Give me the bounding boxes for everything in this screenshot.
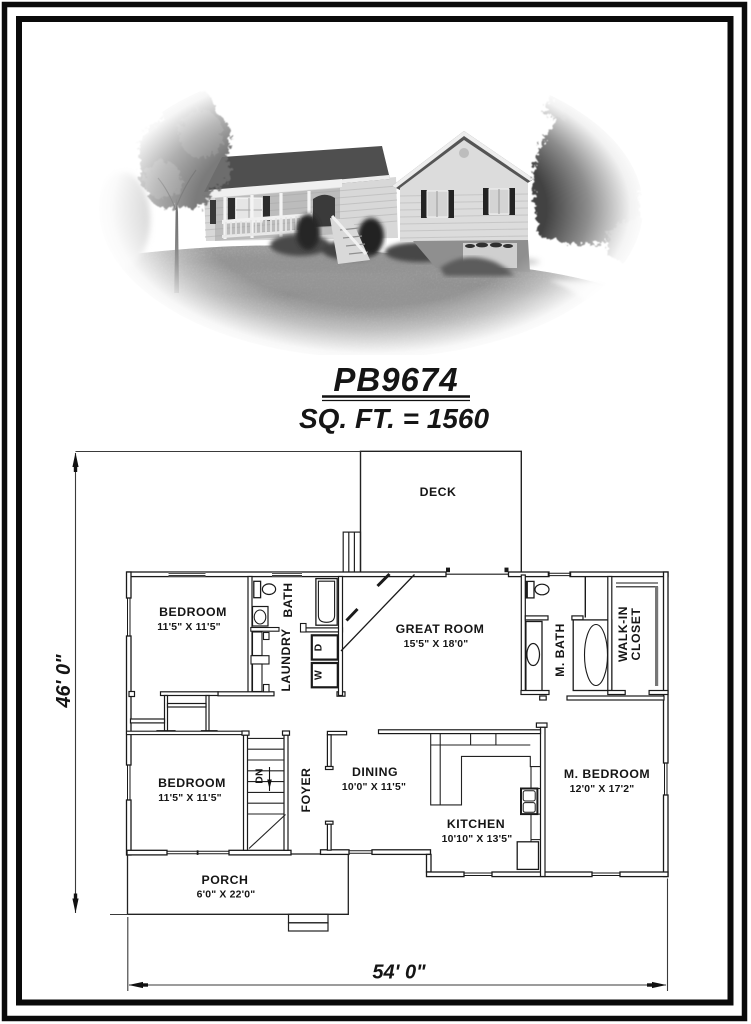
- svg-text:SQ. FT. = 1560: SQ. FT. = 1560: [299, 403, 490, 434]
- svg-text:PORCH: PORCH: [202, 873, 249, 887]
- svg-text:DECK: DECK: [420, 485, 457, 499]
- svg-text:CLOSET: CLOSET: [629, 608, 643, 661]
- svg-text:LAUNDRY: LAUNDRY: [279, 628, 293, 691]
- svg-text:WALK-IN: WALK-IN: [616, 606, 630, 662]
- svg-text:DN: DN: [255, 768, 266, 783]
- svg-text:W: W: [314, 670, 325, 680]
- svg-text:15'5" X 18'0": 15'5" X 18'0": [404, 639, 469, 650]
- svg-text:10'10" X 13'5": 10'10" X 13'5": [442, 834, 513, 845]
- svg-text:PB9674: PB9674: [333, 361, 458, 398]
- svg-text:D: D: [314, 643, 325, 651]
- svg-text:BATH: BATH: [281, 582, 295, 617]
- svg-text:M. BATH: M. BATH: [553, 623, 567, 677]
- svg-text:11'5" X 11'5": 11'5" X 11'5": [158, 793, 222, 804]
- svg-text:12'0" X 17'2": 12'0" X 17'2": [570, 784, 635, 795]
- svg-text:DINING: DINING: [352, 765, 398, 779]
- svg-text:11'5" X 11'5": 11'5" X 11'5": [157, 622, 221, 633]
- svg-text:M. BEDROOM: M. BEDROOM: [564, 767, 650, 781]
- svg-text:FOYER: FOYER: [299, 768, 313, 813]
- svg-text:BEDROOM: BEDROOM: [159, 605, 227, 619]
- svg-text:KITCHEN: KITCHEN: [447, 817, 505, 831]
- svg-text:54' 0": 54' 0": [372, 962, 426, 984]
- svg-text:GREAT ROOM: GREAT ROOM: [396, 622, 485, 636]
- svg-text:6'0" X 22'0": 6'0" X 22'0": [197, 890, 256, 901]
- svg-text:10'0" X 11'5": 10'0" X 11'5": [342, 782, 406, 793]
- svg-text:46' 0": 46' 0": [53, 654, 75, 709]
- svg-text:BEDROOM: BEDROOM: [158, 776, 226, 790]
